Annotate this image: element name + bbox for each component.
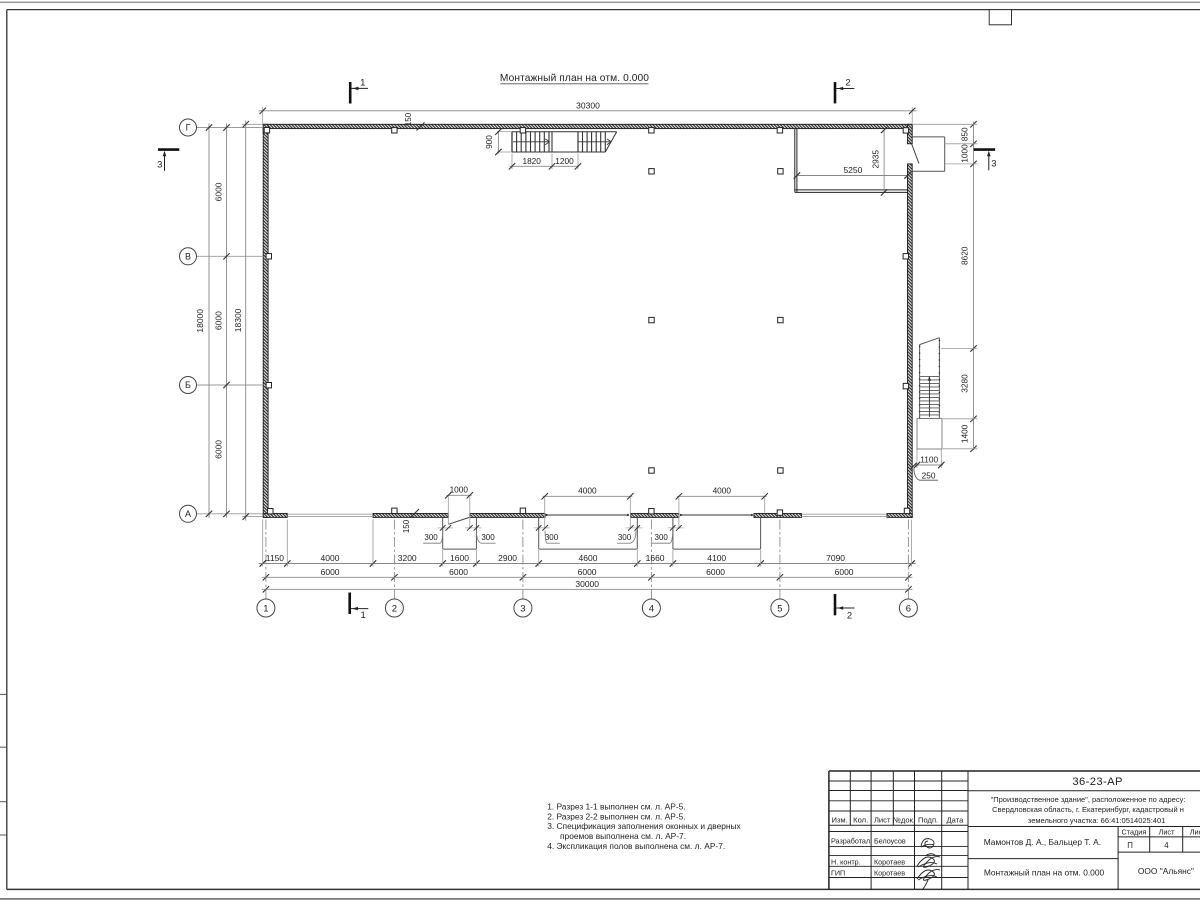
svg-text:4: 4: [649, 603, 654, 614]
svg-text:Дата: Дата: [946, 815, 964, 824]
svg-text:1000: 1000: [450, 485, 469, 495]
svg-text:4: 4: [1164, 841, 1169, 850]
svg-text:4. Экспликация полов выполнена: 4. Экспликация полов выполнена см. л. АР…: [547, 841, 725, 851]
svg-text:6000: 6000: [321, 567, 340, 577]
svg-text:Н. контр.: Н. контр.: [831, 857, 861, 866]
svg-text:ООО "Альянс": ООО "Альянс": [1138, 866, 1194, 876]
svg-text:300: 300: [424, 533, 438, 542]
svg-text:1600: 1600: [450, 553, 469, 563]
svg-text:6000: 6000: [213, 182, 223, 201]
svg-text:1: 1: [360, 78, 365, 89]
svg-text:Лис: Лис: [1190, 828, 1200, 837]
svg-text:2: 2: [845, 78, 850, 89]
svg-text:Г: Г: [186, 123, 191, 133]
svg-text:6000: 6000: [578, 567, 597, 577]
svg-text:1150: 1150: [266, 553, 285, 563]
svg-text:900: 900: [484, 135, 494, 149]
svg-text:4000: 4000: [578, 486, 597, 496]
svg-text:150: 150: [404, 112, 413, 126]
svg-text:6000: 6000: [835, 567, 854, 577]
svg-text:1100: 1100: [920, 454, 938, 464]
svg-text:18000: 18000: [195, 309, 205, 333]
svg-text:1820: 1820: [522, 156, 541, 166]
svg-text:ГИП: ГИП: [831, 869, 845, 878]
svg-text:проемов выполнена см. л. АР-7.: проемов выполнена см. л. АР-7.: [560, 831, 686, 841]
svg-text:1660: 1660: [646, 553, 665, 563]
svg-text:Мамонтов Д. А., Бальцер Т. А.: Мамонтов Д. А., Бальцер Т. А.: [984, 837, 1101, 847]
svg-text:Белоусов: Белоусов: [874, 837, 906, 846]
svg-text:1400: 1400: [960, 424, 970, 443]
svg-text:300: 300: [655, 533, 669, 542]
svg-text:А: А: [185, 509, 191, 519]
svg-text:1200: 1200: [555, 156, 574, 166]
svg-text:П: П: [1127, 841, 1133, 850]
svg-text:земельного участка: 66:41:0514: земельного участка: 66:41:0514025:401: [1028, 816, 1165, 825]
svg-text:250: 250: [922, 470, 936, 480]
svg-text:3: 3: [991, 159, 996, 170]
svg-text:3. Спецификация заполнения око: 3. Спецификация заполнения оконных и две…: [547, 821, 741, 831]
svg-text:Стадия: Стадия: [1121, 828, 1146, 837]
svg-text:8620: 8620: [960, 246, 970, 265]
svg-text:4000: 4000: [713, 486, 732, 496]
svg-text:300: 300: [481, 533, 495, 542]
svg-text:3200: 3200: [398, 553, 417, 563]
svg-text:36-23-АР: 36-23-АР: [1072, 776, 1122, 788]
svg-text:1. Разрез 1-1 выполнен см. л.: 1. Разрез 1-1 выполнен см. л. АР-5.: [547, 801, 685, 811]
svg-text:3: 3: [157, 159, 162, 170]
svg-text:Разработал: Разработал: [831, 837, 870, 846]
svg-text:30300: 30300: [576, 100, 600, 110]
svg-text:850: 850: [960, 127, 970, 141]
svg-text:№док.: №док.: [893, 815, 915, 824]
svg-text:2900: 2900: [498, 553, 517, 563]
svg-text:6000: 6000: [706, 567, 725, 577]
svg-text:Изм.: Изм.: [831, 815, 847, 824]
svg-text:Лист: Лист: [1159, 828, 1176, 837]
svg-text:"Производственное здание", рас: "Производственное здание", расположенное…: [991, 795, 1186, 804]
svg-text:Свердловская область, г. Екате: Свердловская область, г. Екатеринбург, к…: [992, 805, 1184, 814]
svg-text:1000: 1000: [960, 144, 970, 163]
svg-text:1: 1: [361, 610, 366, 621]
svg-text:2. Разрез 2-2 выполнен см. л.: 2. Разрез 2-2 выполнен см. л. АР-5.: [547, 811, 685, 821]
svg-text:300: 300: [618, 533, 632, 542]
svg-text:Коротаев: Коротаев: [874, 857, 905, 866]
svg-text:4000: 4000: [321, 553, 340, 563]
svg-text:4600: 4600: [579, 553, 598, 563]
svg-text:6: 6: [906, 603, 911, 614]
svg-text:150: 150: [402, 519, 411, 533]
svg-text:4100: 4100: [707, 553, 726, 563]
svg-text:6000: 6000: [213, 311, 223, 330]
svg-text:300: 300: [545, 533, 559, 542]
svg-text:Лист: Лист: [874, 815, 891, 824]
svg-text:Кол.: Кол.: [853, 815, 868, 824]
svg-text:18300: 18300: [233, 308, 243, 332]
svg-text:5250: 5250: [843, 165, 862, 175]
svg-text:Монтажный план на отм. 0.000: Монтажный план на отм. 0.000: [500, 73, 649, 84]
svg-text:3: 3: [520, 603, 525, 614]
svg-text:Монтажный план на отм. 0.000: Монтажный план на отм. 0.000: [984, 867, 1105, 877]
svg-text:6000: 6000: [449, 567, 468, 577]
svg-text:3280: 3280: [960, 374, 970, 393]
svg-text:Коротаев: Коротаев: [874, 869, 905, 878]
svg-text:В: В: [185, 252, 191, 262]
svg-text:6000: 6000: [213, 440, 223, 459]
svg-text:1: 1: [263, 603, 268, 614]
svg-text:2: 2: [847, 610, 852, 621]
svg-text:Подп.: Подп.: [918, 815, 938, 824]
svg-text:2: 2: [392, 603, 397, 614]
svg-text:2935: 2935: [871, 150, 881, 169]
svg-text:Б: Б: [185, 380, 191, 390]
svg-text:7090: 7090: [826, 553, 845, 563]
svg-text:30000: 30000: [575, 579, 599, 589]
svg-text:5: 5: [777, 603, 782, 614]
